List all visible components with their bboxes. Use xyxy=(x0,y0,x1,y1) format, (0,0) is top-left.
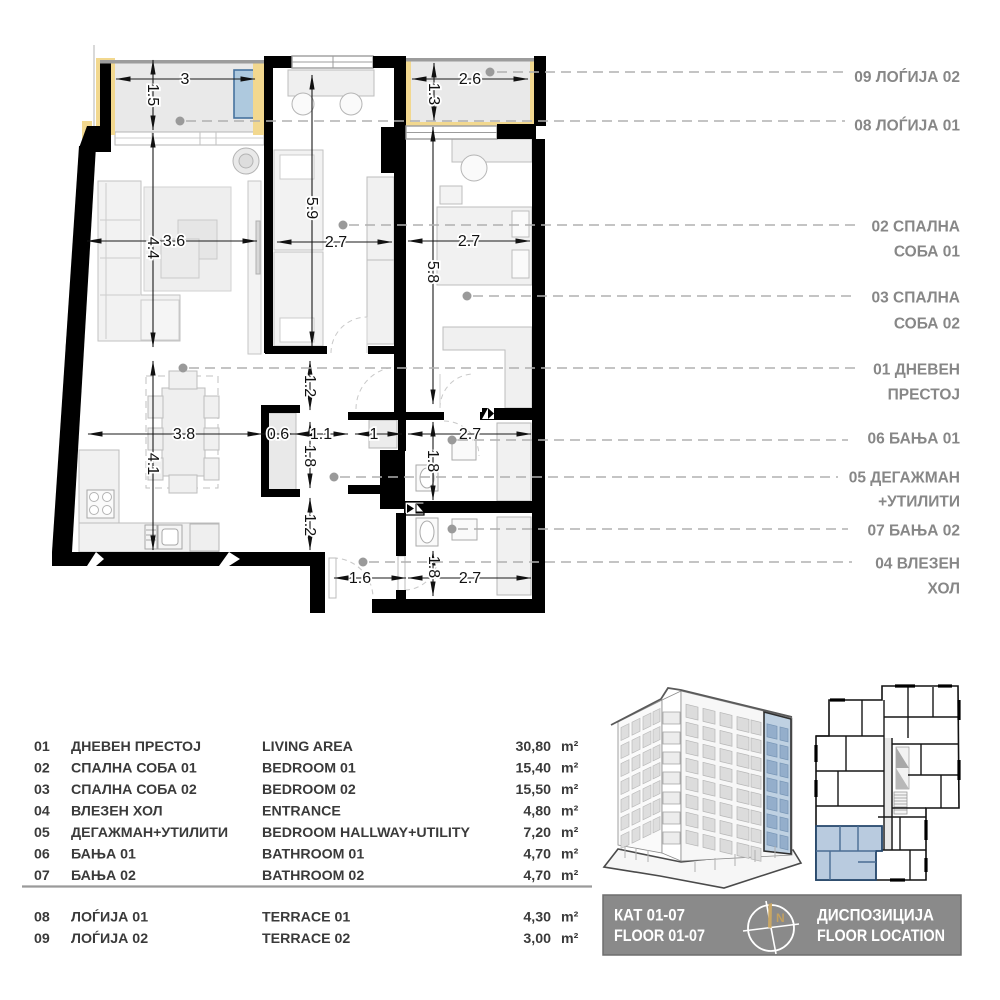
svg-text:7,20: 7,20 xyxy=(523,825,551,841)
svg-text:04: 04 xyxy=(34,804,50,820)
svg-text:m²: m² xyxy=(561,804,579,820)
svg-text:ХОЛ: ХОЛ xyxy=(928,581,960,598)
svg-text:СОБА 02: СОБА 02 xyxy=(894,316,960,333)
svg-text:3.8: 3.8 xyxy=(173,426,195,443)
svg-text:FLOOR LOCATION: FLOOR LOCATION xyxy=(817,927,945,945)
svg-text:4,30: 4,30 xyxy=(523,910,551,926)
svg-text:ВЛЕЗЕН ХОЛ: ВЛЕЗЕН ХОЛ xyxy=(71,804,163,820)
svg-text:0.6: 0.6 xyxy=(267,426,289,443)
svg-text:3.6: 3.6 xyxy=(163,233,185,250)
svg-text:m²: m² xyxy=(561,847,579,863)
svg-text:07: 07 xyxy=(34,868,50,884)
svg-text:04 ВЛЕЗЕН: 04 ВЛЕЗЕН xyxy=(875,556,960,573)
svg-text:3: 3 xyxy=(181,71,190,88)
svg-text:5.8: 5.8 xyxy=(424,261,441,283)
svg-text:1.1: 1.1 xyxy=(310,426,332,443)
svg-text:ДНЕВЕН ПРЕСТОЈ: ДНЕВЕН ПРЕСТОЈ xyxy=(71,739,201,755)
svg-text:08 ЛОЃИЈА 01: 08 ЛОЃИЈА 01 xyxy=(854,118,960,135)
svg-text:1.2: 1.2 xyxy=(301,514,318,536)
svg-text:ПРЕСТОЈ: ПРЕСТОЈ xyxy=(888,387,960,404)
svg-text:3,00: 3,00 xyxy=(523,931,551,947)
svg-text:1.8: 1.8 xyxy=(425,556,442,578)
svg-text:ЛОЃИЈА 02: ЛОЃИЈА 02 xyxy=(71,930,148,947)
svg-text:30,80: 30,80 xyxy=(515,739,551,755)
svg-text:СПАЛНА СОБА 01: СПАЛНА СОБА 01 xyxy=(71,761,197,777)
svg-text:BATHROOM 02: BATHROOM 02 xyxy=(262,868,364,884)
svg-text:m²: m² xyxy=(561,825,579,841)
svg-text:m²: m² xyxy=(561,739,579,755)
svg-text:2.7: 2.7 xyxy=(459,570,481,587)
svg-text:2.6: 2.6 xyxy=(459,71,481,88)
svg-text:СПАЛНА СОБА 02: СПАЛНА СОБА 02 xyxy=(71,782,197,798)
svg-text:БАЊА 01: БАЊА 01 xyxy=(71,847,136,863)
svg-text:БАЊА 02: БАЊА 02 xyxy=(71,868,136,884)
svg-text:4.1: 4.1 xyxy=(144,453,161,475)
svg-text:05: 05 xyxy=(34,825,50,841)
svg-text:09 ЛОЃИЈА 02: 09 ЛОЃИЈА 02 xyxy=(854,69,960,86)
svg-text:LIVING AREA: LIVING AREA xyxy=(262,739,353,755)
svg-text:ДЕГАЖМАН+УТИЛИТИ: ДЕГАЖМАН+УТИЛИТИ xyxy=(71,825,228,841)
svg-text:06 БАЊА 01: 06 БАЊА 01 xyxy=(867,431,960,448)
svg-text:1.6: 1.6 xyxy=(349,570,371,587)
svg-text:02: 02 xyxy=(34,761,50,777)
svg-text:1.3: 1.3 xyxy=(425,83,442,105)
svg-text:TERRACE 01: TERRACE 01 xyxy=(262,910,350,926)
svg-text:08: 08 xyxy=(34,910,50,926)
svg-text:BEDROOM 01: BEDROOM 01 xyxy=(262,761,356,777)
svg-text:1.8: 1.8 xyxy=(424,450,441,472)
svg-text:4,70: 4,70 xyxy=(523,847,551,863)
svg-text:07 БАЊА 02: 07 БАЊА 02 xyxy=(867,523,960,540)
svg-text:1.2: 1.2 xyxy=(301,375,318,397)
svg-text:15,40: 15,40 xyxy=(515,761,551,777)
svg-text:01: 01 xyxy=(34,739,50,755)
svg-text:4,70: 4,70 xyxy=(523,868,551,884)
svg-text:1.5: 1.5 xyxy=(144,84,161,106)
svg-text:BATHROOM 01: BATHROOM 01 xyxy=(262,847,364,863)
svg-text:BEDROOM 02: BEDROOM 02 xyxy=(262,782,356,798)
svg-text:1: 1 xyxy=(370,426,379,443)
svg-text:03 СПАЛНА: 03 СПАЛНА xyxy=(871,290,960,307)
svg-text:ENTRANCE: ENTRANCE xyxy=(262,804,341,820)
svg-text:09: 09 xyxy=(34,931,50,947)
svg-text:ЛОЃИЈА 01: ЛОЃИЈА 01 xyxy=(71,909,148,926)
svg-text:ДИСПОЗИЦИЈА: ДИСПОЗИЦИЈА xyxy=(817,907,934,925)
svg-text:m²: m² xyxy=(561,868,579,884)
svg-text:+УТИЛИТИ: +УТИЛИТИ xyxy=(878,494,960,511)
svg-text:2.7: 2.7 xyxy=(325,234,347,251)
svg-text:06: 06 xyxy=(34,847,50,863)
svg-text:01 ДНЕВЕН: 01 ДНЕВЕН xyxy=(873,362,960,379)
svg-text:m²: m² xyxy=(561,910,579,926)
svg-text:02 СПАЛНА: 02 СПАЛНА xyxy=(871,219,960,236)
svg-text:m²: m² xyxy=(561,761,579,777)
svg-text:FLOOR 01-07: FLOOR 01-07 xyxy=(614,927,705,945)
svg-text:КАТ 01-07: КАТ 01-07 xyxy=(614,907,685,925)
svg-text:03: 03 xyxy=(34,782,50,798)
svg-text:m²: m² xyxy=(561,782,579,798)
svg-text:TERRACE 02: TERRACE 02 xyxy=(262,931,350,947)
svg-text:N: N xyxy=(776,911,785,925)
svg-text:2.7: 2.7 xyxy=(458,233,480,250)
svg-text:05 ДЕГАЖМАН: 05 ДЕГАЖМАН xyxy=(849,470,960,487)
svg-text:BEDROOM HALLWAY+UTILITY: BEDROOM HALLWAY+UTILITY xyxy=(262,825,470,841)
svg-text:4,80: 4,80 xyxy=(523,804,551,820)
svg-text:СОБА 01: СОБА 01 xyxy=(894,244,961,261)
svg-text:5.9: 5.9 xyxy=(303,197,320,219)
svg-text:4.4: 4.4 xyxy=(144,237,161,259)
svg-text:m²: m² xyxy=(561,931,579,947)
svg-text:15,50: 15,50 xyxy=(515,782,551,798)
svg-text:1.8: 1.8 xyxy=(301,445,318,467)
